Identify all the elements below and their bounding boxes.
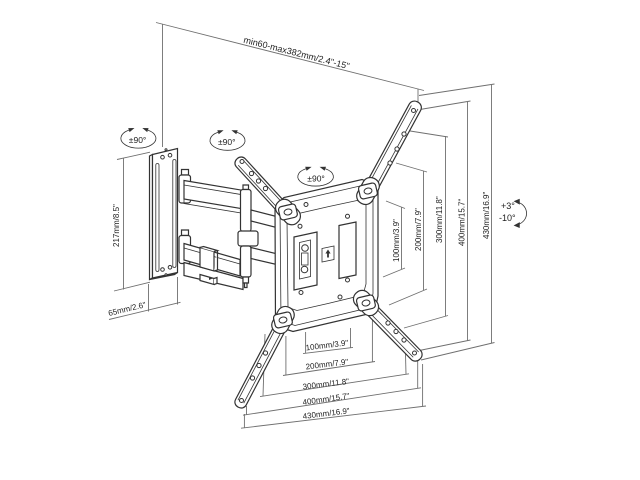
svg-text:217mm/8.5": 217mm/8.5" (112, 204, 121, 247)
svg-text:±90°: ±90° (129, 135, 147, 145)
svg-text:400mm/15.7": 400mm/15.7" (458, 199, 467, 246)
svg-text:100mm/3.9": 100mm/3.9" (392, 219, 401, 262)
svg-text:430mm/16.9": 430mm/16.9" (482, 192, 491, 239)
svg-text:+3°: +3° (501, 201, 515, 211)
svg-text:300mm/11.8": 300mm/11.8" (435, 196, 444, 243)
svg-text:200mm/7.9": 200mm/7.9" (414, 208, 423, 251)
svg-text:-10°: -10° (499, 213, 516, 223)
svg-text:±90°: ±90° (307, 173, 325, 183)
svg-text:±90°: ±90° (218, 137, 236, 147)
